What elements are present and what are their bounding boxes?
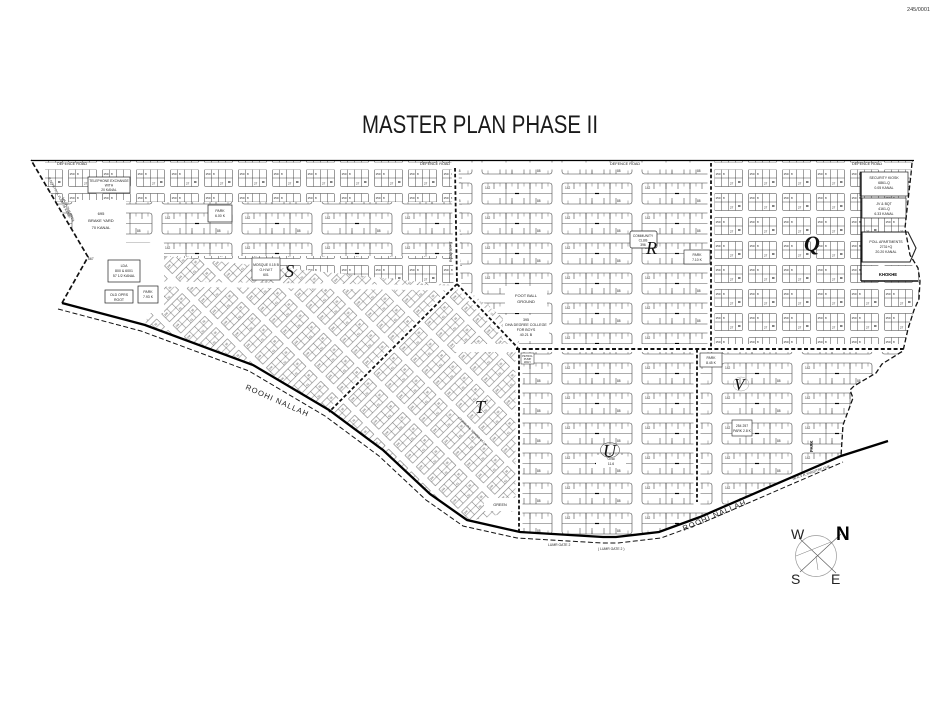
svg-text:2731+Q: 2731+Q	[880, 245, 893, 249]
svg-text:PARK: PARK	[143, 290, 153, 294]
svg-text:7.93 K: 7.93 K	[143, 295, 154, 299]
svg-text:OLD OPRS: OLD OPRS	[110, 293, 129, 297]
svg-text:245/0001: 245/0001	[907, 7, 930, 13]
svg-text:W: W	[791, 526, 805, 542]
svg-text:PARK: PARK	[809, 440, 814, 452]
svg-text:GROUND: GROUND	[517, 299, 535, 304]
svg-text:WITH: WITH	[105, 184, 114, 188]
svg-text:BRAKE YARD: BRAKE YARD	[88, 218, 114, 223]
svg-text:TELEPHONE EXCHANGE: TELEPHONE EXCHANGE	[89, 179, 129, 183]
svg-text:395: 395	[523, 318, 529, 322]
svg-text:DEFENCE ROAD: DEFENCE ROAD	[57, 162, 87, 166]
svg-text:667: 667	[88, 257, 94, 261]
svg-text:FOR BOYS: FOR BOYS	[517, 328, 536, 332]
svg-text:8.45 K: 8.45 K	[706, 361, 717, 365]
svg-text:4161-Q: 4161-Q	[878, 207, 890, 211]
svg-text:DEFENCE ROAD: DEFENCE ROAD	[610, 162, 640, 166]
svg-text:6.00 K: 6.00 K	[215, 214, 226, 218]
svg-text:Q: Q	[804, 231, 820, 256]
svg-text:U: U	[603, 441, 617, 461]
svg-text:254 257: 254 257	[736, 424, 748, 428]
svg-text:20 KANAL: 20 KANAL	[101, 188, 117, 192]
svg-text:KHOKHE: KHOKHE	[879, 272, 897, 277]
svg-text:601: 601	[263, 273, 269, 277]
svg-text:695: 695	[98, 211, 105, 216]
svg-text:LDA: LDA	[121, 264, 128, 268]
svg-text:6.33 KANAL: 6.33 KANAL	[874, 212, 893, 216]
svg-text:70 KANAL: 70 KANAL	[92, 225, 111, 230]
svg-text:PARK: PARK	[707, 356, 717, 360]
svg-text:PARK 2.8 K: PARK 2.8 K	[733, 429, 752, 433]
svg-text:57 1/2 KANAL: 57 1/2 KANAL	[113, 274, 135, 278]
svg-text:DHA DEGREE COLLEGE: DHA DEGREE COLLEGE	[505, 323, 547, 327]
svg-text:R: R	[645, 238, 657, 258]
svg-text:E: E	[831, 571, 840, 587]
svg-text:PARK: PARK	[693, 253, 703, 257]
svg-text:N: N	[836, 524, 850, 545]
svg-text:6861-Q: 6861-Q	[878, 181, 890, 185]
svg-text:PARK: PARK	[215, 209, 225, 213]
svg-text:MASTER PLAN PHASE II: MASTER PLAN PHASE II	[362, 112, 598, 139]
svg-text:0.05 KANAL: 0.05 KANAL	[874, 186, 893, 190]
svg-text:POLL APARTMENTS: POLL APARTMENTS	[869, 240, 903, 244]
svg-text:SECURITY KIOSK: SECURITY KIOSK	[869, 176, 899, 180]
svg-text:WALY: WALY	[524, 360, 531, 364]
svg-text:S: S	[791, 571, 800, 587]
svg-text:MOSQUE 0.15 B: MOSQUE 0.15 B	[253, 263, 280, 267]
svg-text:800 & 6001: 800 & 6001	[115, 269, 133, 273]
svg-text:O.H.W.T: O.H.W.T	[260, 268, 273, 272]
svg-text:( LUMR GATE 2 ): ( LUMR GATE 2 )	[598, 547, 625, 551]
svg-text:ROAD 30 F-T: ROAD 30 F-T	[449, 241, 453, 262]
svg-text:JV & BQT: JV & BQT	[876, 202, 892, 206]
svg-text:S: S	[285, 261, 294, 281]
svg-text:40.21 B: 40.21 B	[520, 333, 533, 337]
svg-text:7.10 K: 7.10 K	[692, 258, 703, 262]
svg-text:11.6: 11.6	[608, 462, 614, 466]
svg-text:DEFENCE ROAD: DEFENCE ROAD	[420, 162, 450, 166]
svg-text:GREEN: GREEN	[493, 503, 507, 507]
svg-text:LUMR GATE 2: LUMR GATE 2	[548, 543, 570, 547]
svg-text:20.20 KANAL: 20.20 KANAL	[875, 250, 896, 254]
svg-text:FOOT BALL: FOOT BALL	[515, 293, 538, 298]
svg-text:DEFENCE ROAD: DEFENCE ROAD	[852, 162, 882, 166]
svg-text:ROOT: ROOT	[114, 298, 125, 302]
